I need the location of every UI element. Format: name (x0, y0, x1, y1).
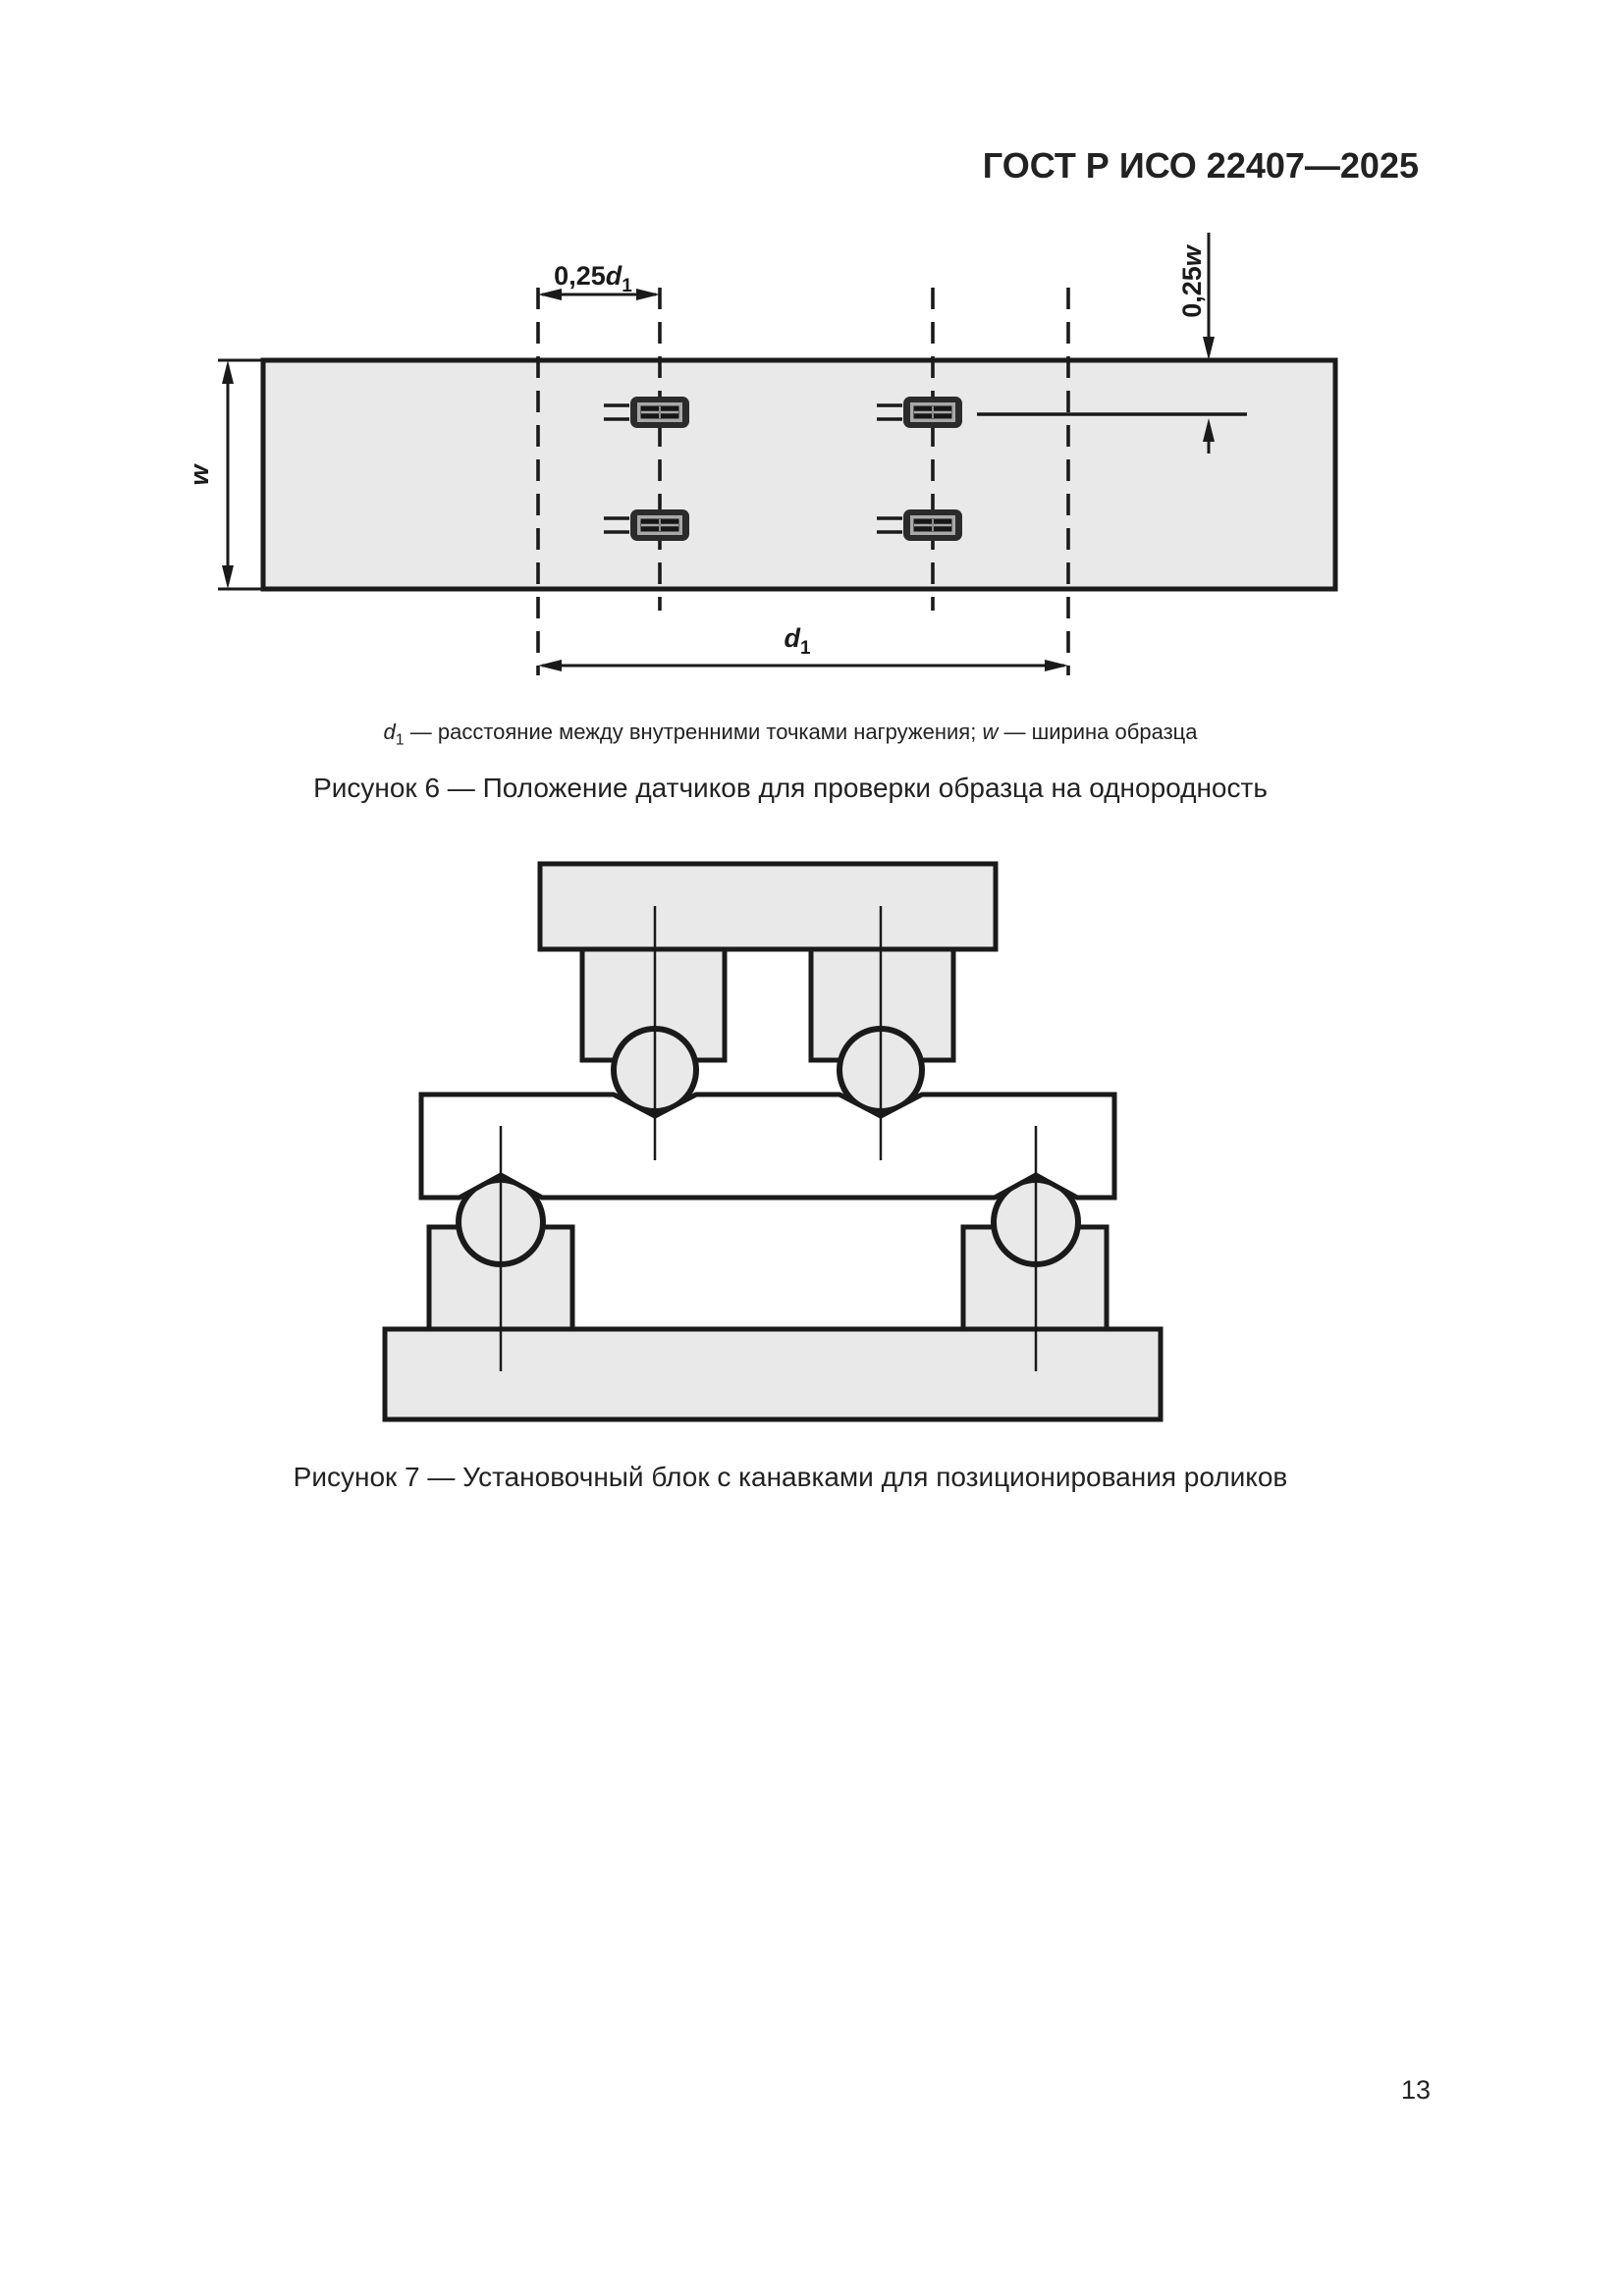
dim-label-d1: d1 (784, 623, 811, 659)
dimension-w: w (185, 360, 263, 589)
dim-label-quarter-w: 0,25w (1177, 243, 1207, 318)
legend-symbol-d1: d (383, 720, 395, 744)
figure6-caption: Рисунок 6 — Положение датчиков для прове… (0, 773, 1581, 804)
crosshead (540, 864, 996, 949)
figure7-drawing (363, 839, 1178, 1438)
specimen-rect (263, 360, 1335, 589)
figure6-drawing: 0,25d1 w 0,25w d1 (137, 216, 1404, 775)
dimension-quarter-d1: 0,25d1 (538, 261, 660, 300)
page-number: 13 (1394, 2075, 1437, 2106)
figure7-caption: Рисунок 7 — Установочный блок с канавкам… (0, 1462, 1581, 1493)
dimension-d1: d1 (538, 623, 1068, 671)
figure6-legend: d1 — расстояние между внутренними точкам… (0, 718, 1581, 755)
dim-label-w: w (185, 463, 214, 486)
document-page: ГОСТ Р ИСО 22407—2025 0,25d1 w (0, 0, 1624, 2296)
positioning-block (421, 1095, 1114, 1198)
dim-label-quarter-d1: 0,25d1 (554, 261, 632, 296)
page-header-title: ГОСТ Р ИСО 22407—2025 (983, 145, 1419, 187)
legend-symbol-w: w (982, 720, 998, 744)
